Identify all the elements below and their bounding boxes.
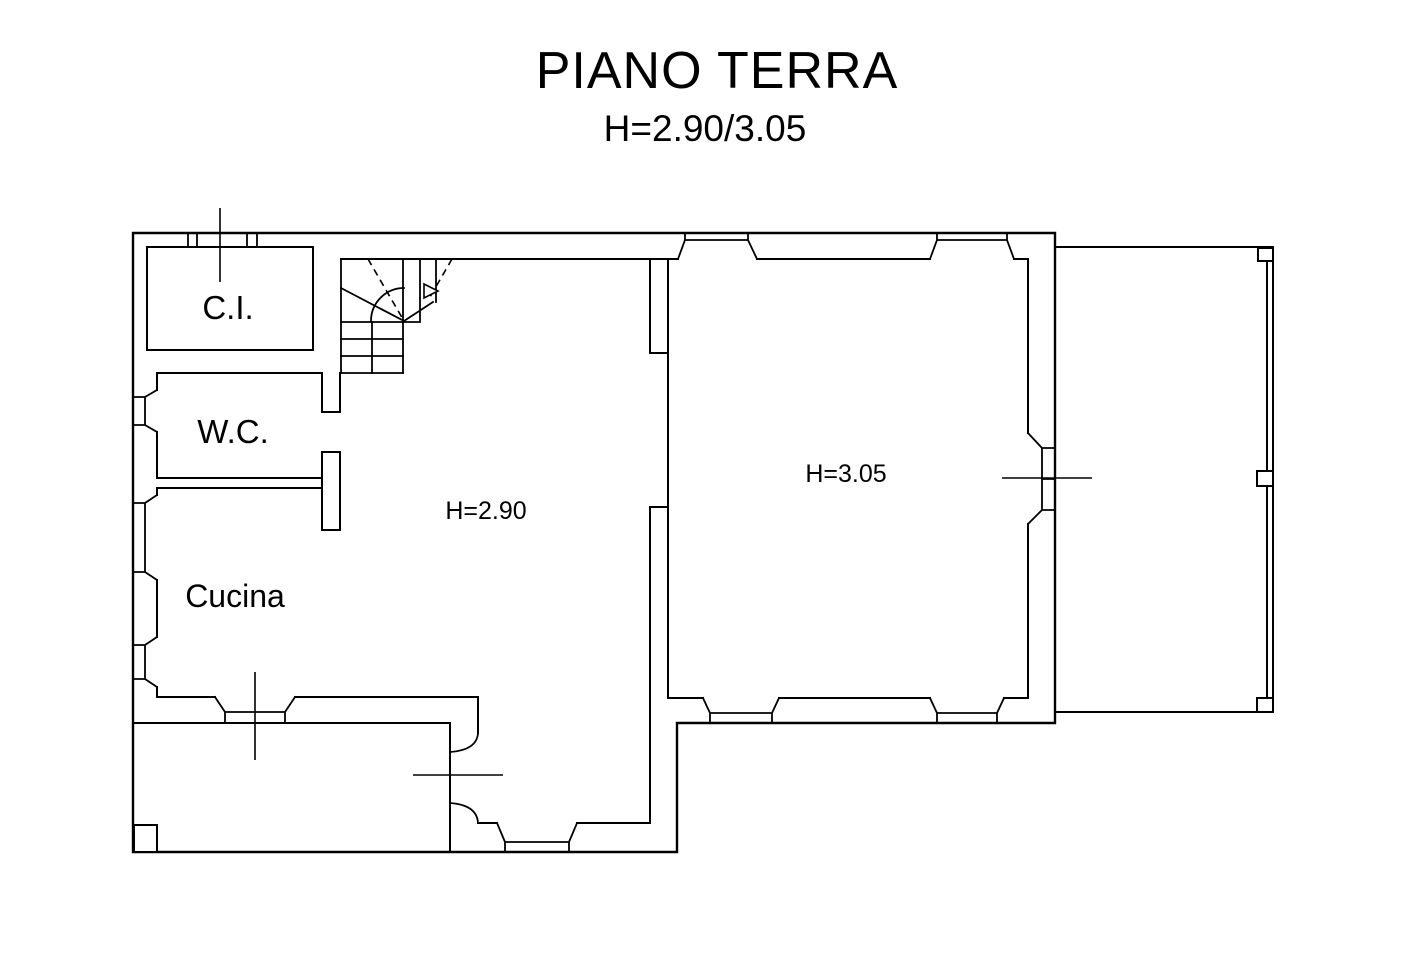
lower-left-room — [134, 825, 157, 852]
outer-walls — [133, 233, 1055, 852]
ci-closet — [147, 208, 313, 350]
porch-entry-window — [497, 823, 577, 852]
room-label-wc: W.C. — [197, 413, 269, 450]
entrance-porch — [413, 697, 650, 852]
floor-title: PIANO TERRA — [536, 42, 899, 100]
wc-partition — [157, 373, 340, 530]
room-labels: C.I. W.C. Cucina H=2.90 H=3.05 — [185, 289, 886, 614]
room-label-ci: C.I. — [202, 289, 253, 326]
kitchen-window — [215, 672, 295, 760]
terrace-post-bottom — [1257, 698, 1273, 712]
stairs — [341, 259, 452, 373]
terrace-door — [1002, 433, 1092, 524]
inner-walls — [133, 259, 1028, 823]
height-label-central: H=2.90 — [445, 497, 526, 525]
terrace-post-middle — [1257, 471, 1273, 486]
left-wall-windows — [133, 390, 157, 687]
height-label-right: H=3.05 — [805, 460, 886, 488]
floor-height-subtitle: H=2.90/3.05 — [604, 108, 807, 149]
right-room-top-windows — [678, 233, 1014, 259]
right-room-bottom-windows — [703, 698, 1004, 723]
room-label-cucina: Cucina — [185, 578, 285, 614]
floor-plan-drawing: PIANO TERRA H=2.90/3.05 — [0, 0, 1402, 980]
stair-cut-lines — [368, 259, 452, 321]
corner-pillar — [134, 825, 157, 852]
terrace — [1055, 247, 1273, 712]
terrace-post-top — [1258, 248, 1273, 261]
floor-plan-page: PIANO TERRA H=2.90/3.05 — [0, 0, 1402, 980]
